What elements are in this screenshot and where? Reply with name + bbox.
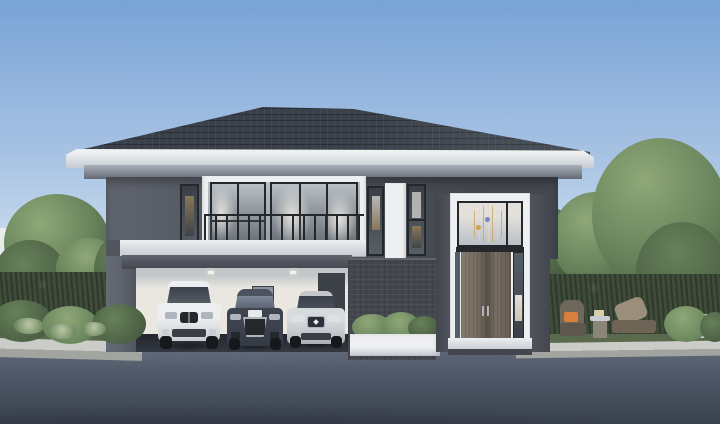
suv-windshield [167,287,211,304]
pale-leaf-plant-3 [82,322,106,336]
patio-side-table [590,316,610,338]
suv-mirror-left [156,304,162,309]
entrance-upper-glass [457,201,523,247]
decor-accent-blue [485,217,490,222]
sedan-headlight-right [327,315,341,322]
silver-sedan [287,291,345,349]
white-accent-panel [385,183,406,260]
ceiling-light [208,271,214,274]
window-interior-shelf [372,196,380,230]
hanging-decor-art [471,206,505,242]
lounge-base [612,320,656,333]
narrow-window-mid-b [407,184,426,256]
suv-grille [180,312,198,323]
sedan-headlight-left [290,315,304,322]
suv-foglight-left [162,329,169,335]
chair-seat [560,323,586,336]
coupe-headlight-left [230,314,241,320]
window-interior-warm-2 [412,226,421,248]
interior-sofa-glimpse [515,295,522,321]
sedan-wheel-right [331,336,342,348]
narrow-window-mid-a [367,186,384,256]
coupe-badge-plate [248,310,262,317]
lounge-chair [612,298,658,338]
orange-cushion [564,312,578,322]
pale-leaf-plant-2 [48,324,76,339]
coupe-wheel-left [229,338,240,350]
garage-header-beam [122,255,352,269]
suv-headlight-right [201,312,213,319]
suv-bumper-intake [172,329,206,337]
dark-coupe [227,289,283,351]
ceiling-light-2 [290,271,296,274]
coupe-grille [243,317,267,337]
coupe-wheel-right [270,338,281,350]
window-interior-warm [412,192,421,218]
sedan-wheel-left [290,336,301,348]
door-handles [482,306,490,316]
decor-accent-gold [476,225,481,230]
suv-headlight-left [165,312,177,319]
tower-right-column [528,194,550,352]
wicker-chair [560,300,586,338]
door-sidelight-right [513,252,524,340]
pale-leaf-plant [14,318,44,334]
house-exterior-rendering [0,0,720,424]
white-suv [158,281,220,351]
table-base [593,321,607,338]
suv-mirror-right [216,304,222,309]
front-door [461,252,511,340]
planter-box [350,334,440,356]
suv-wheel-right [206,336,218,349]
sedan-bumper-intake [301,333,331,340]
entrance-base-shadow [448,349,532,355]
window-pane-divider [409,219,424,221]
suv-wheel-left [160,336,172,349]
narrow-window-interior-glow [185,196,194,236]
suv-foglight-right [209,329,216,335]
door-sidelight-left [452,252,460,340]
coupe-headlight-right [269,314,280,320]
